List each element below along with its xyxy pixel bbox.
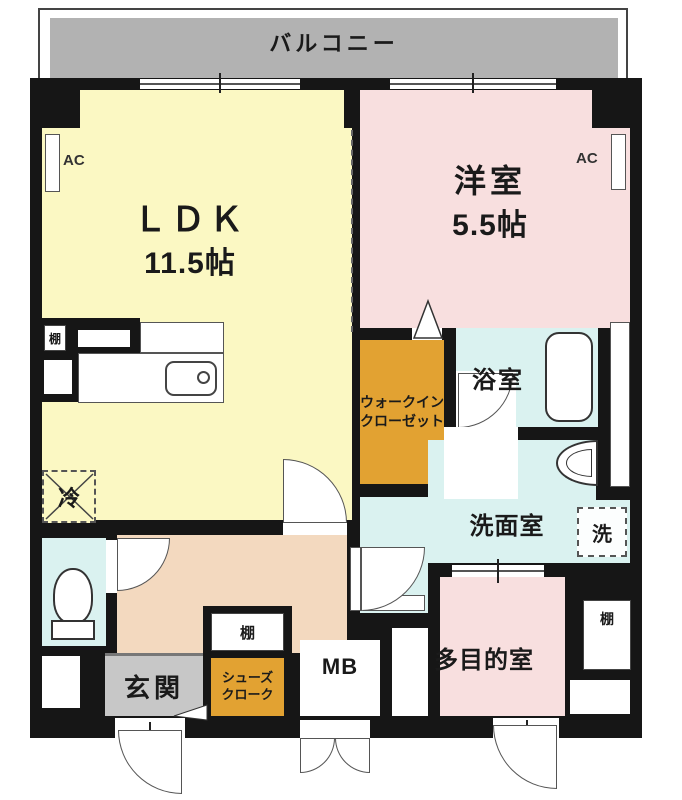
toilet-door-opening xyxy=(106,540,117,593)
kitchen-shelf: 棚 xyxy=(44,325,66,351)
floorplan: バルコニー ウォークイン クローゼット 洗 玄関 xyxy=(0,0,682,800)
wic-door-opening xyxy=(412,328,442,340)
western-label: 洋室 xyxy=(425,156,555,202)
corner-niche-bottom-left xyxy=(42,656,80,708)
multi-shelf-label: 棚 xyxy=(600,609,614,629)
hall-shelf-label: 棚 xyxy=(240,622,255,643)
wic-label-line2: クローゼット xyxy=(360,412,444,431)
meter-box-door-opening xyxy=(300,720,370,738)
window-tick-ldk xyxy=(219,73,221,93)
hall-shelf: 棚 xyxy=(211,613,284,651)
bathtub xyxy=(545,332,593,422)
western-size-label: 5.5帖 xyxy=(418,200,562,244)
kitchen-shelf-label: 棚 xyxy=(49,330,61,347)
ldk-label: ＬＤＫ xyxy=(115,192,265,241)
washer-label: 洗 xyxy=(592,518,612,547)
sliding-partition-dashed xyxy=(351,130,353,332)
toilet-bowl xyxy=(53,568,93,624)
room-entrance: 玄関 xyxy=(105,653,203,716)
corner-niche-bottom-right xyxy=(570,680,630,714)
multi-door-swing xyxy=(493,725,557,789)
shoe-closet-label-line2: クローク xyxy=(221,687,273,704)
kitchen-counter-back xyxy=(78,330,130,347)
column-top-right xyxy=(592,90,630,128)
column-top-left xyxy=(42,90,80,128)
refrigerator-label: 冷 xyxy=(58,481,80,513)
entrance-label: 玄関 xyxy=(124,668,184,705)
room-shoe-closet: シューズ クローク xyxy=(211,658,284,716)
refrigerator-space: 冷 xyxy=(42,470,96,523)
ac-unit-western xyxy=(611,134,626,190)
ac-label-ldk: AC xyxy=(63,152,85,169)
meter-box-door-right xyxy=(335,738,370,773)
window-tick-western xyxy=(472,73,474,93)
kitchen-faucet xyxy=(197,371,210,384)
shoe-closet-label-line1: シューズ xyxy=(222,670,273,687)
ac-unit-ldk xyxy=(45,134,60,192)
ldk-door-opening xyxy=(283,521,347,535)
kitchen-counter-upper xyxy=(140,322,224,353)
opening-tick-multi xyxy=(497,559,499,583)
meter-box: MB xyxy=(300,640,380,716)
pipe-space-inner xyxy=(610,322,630,487)
room-ldk xyxy=(42,90,352,520)
entrance-door-swing xyxy=(118,730,182,794)
ldk-size-label: 11.5帖 xyxy=(105,238,275,282)
washroom-vestibule xyxy=(444,427,518,499)
wall-stub-top-middle xyxy=(344,90,358,128)
meter-box-door-left xyxy=(300,738,335,773)
multi-shelf: 棚 xyxy=(583,600,631,670)
kitchen-storage-box xyxy=(44,360,72,394)
balcony-label: バルコニー xyxy=(50,26,618,58)
multipurpose-label: 多目的室 xyxy=(418,640,550,675)
washing-machine-space: 洗 xyxy=(577,507,627,557)
bathroom-label: 浴室 xyxy=(460,360,536,395)
meter-box-label: MB xyxy=(322,654,358,680)
toilet-tank xyxy=(51,620,95,640)
wic-label-line1: ウォークイン xyxy=(360,393,444,412)
washroom-door-leaf xyxy=(350,547,361,611)
ac-label-western: AC xyxy=(576,150,598,167)
washroom-label: 洗面室 xyxy=(455,506,559,541)
